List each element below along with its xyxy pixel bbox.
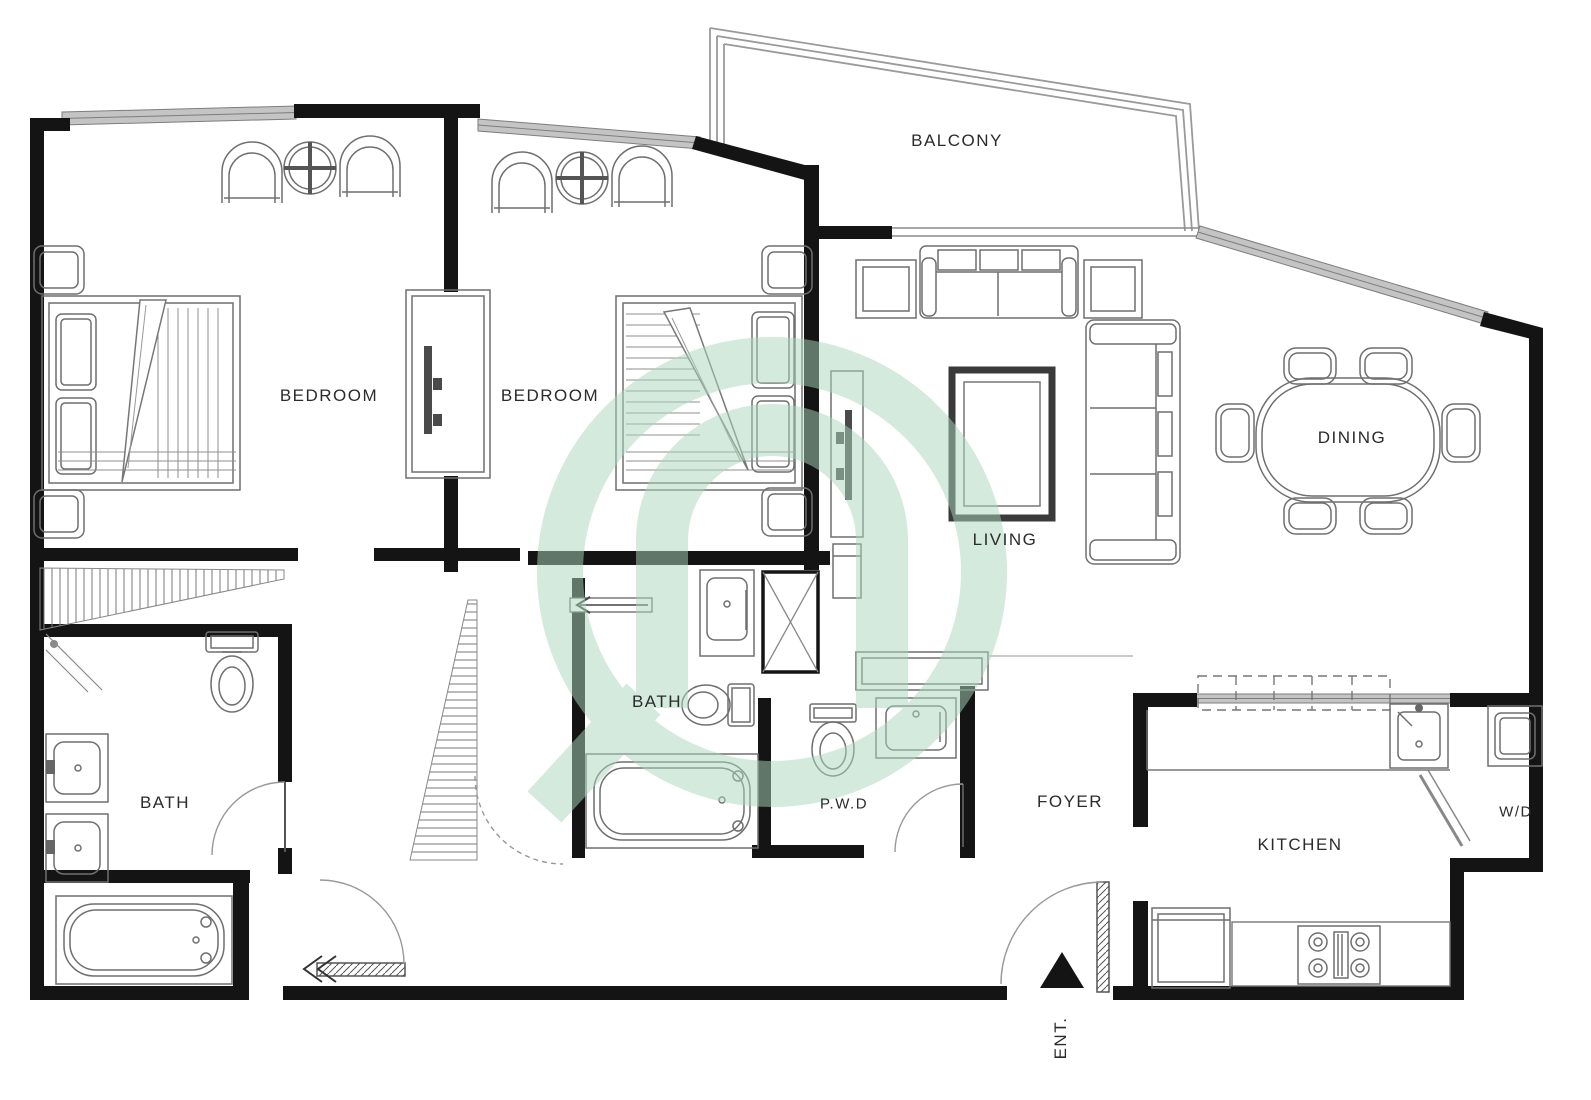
door-arc-pwd (895, 784, 963, 852)
wall-bedrooms-bottom-b (374, 548, 520, 561)
shower-icon (46, 634, 102, 692)
round-table-icon (284, 142, 336, 194)
room-label-living: LIVING (973, 530, 1038, 550)
floor-plan-drawing (0, 0, 1591, 1100)
dining-chair-icon (1284, 498, 1336, 534)
bathtub-icon (56, 896, 232, 984)
round-table-icon (556, 152, 608, 204)
room-label-wd: W/D (1499, 804, 1533, 821)
wall-bottom-b (283, 986, 1007, 1000)
toilet-icon (206, 632, 258, 712)
wall-living-top-stub (806, 226, 892, 239)
dining-chair-icon (1442, 404, 1480, 462)
wall-foyer-kitchen-lower (1133, 901, 1148, 1000)
wall-left (30, 118, 44, 1000)
wall-bottom-a (30, 986, 248, 1000)
sectional-sofa-icon (1086, 320, 1180, 564)
dining-chair-icon (1216, 404, 1254, 462)
kitchen-fixtures (1147, 676, 1450, 988)
wall-kitchen-top-left (1133, 693, 1197, 707)
sink-icon (700, 570, 754, 656)
armchair-icon (492, 152, 552, 213)
wall-corner-topright (1480, 312, 1543, 342)
door-arc-corridor (320, 880, 404, 964)
sofa-icon (920, 246, 1078, 318)
door-diagonal-wd (1420, 775, 1462, 846)
upper-cabinets-icon (1198, 676, 1390, 710)
wall-top-mid (294, 104, 480, 118)
bedroom1-furniture (34, 136, 490, 538)
door-arc-bath1 (212, 782, 285, 855)
bed-icon (42, 296, 240, 490)
wall-kitchen-right (1450, 858, 1464, 1000)
walls (30, 104, 1543, 1000)
room-label-bedroom-2: BEDROOM (501, 386, 599, 406)
room-label-kitchen: KITCHEN (1257, 835, 1342, 855)
room-label-dining: DINING (1318, 428, 1387, 448)
side-table-icon (1084, 260, 1142, 318)
side-table-icon (856, 260, 916, 318)
wall-tubroom-right (233, 883, 249, 1000)
dining-chair-icon (1360, 498, 1412, 534)
wall-bath1-right-upper (278, 630, 292, 782)
room-label-bedroom-1: BEDROOM (280, 386, 378, 406)
wall-right (1529, 328, 1543, 872)
wall-pwd-bottom (752, 845, 864, 858)
entrance-arrow-icon (1040, 952, 1084, 988)
door-leaf-entrance (1097, 882, 1109, 992)
wall-foyer-kitchen-upper (1133, 695, 1148, 827)
room-label-foyer: FOYER (1037, 792, 1103, 812)
floor-plan-page: BALCONY BEDROOM BEDROOM LIVING DINING BA… (0, 0, 1591, 1100)
wall-bedrooms-bottom-a (44, 548, 298, 561)
door-leaf-corridor (317, 963, 405, 976)
closet-wedge-corridor (410, 600, 477, 860)
armchair-icon (340, 136, 400, 197)
wall-top-left-stub (30, 118, 70, 131)
window-living-top (890, 228, 1202, 236)
closet-wedge-bedroom1 (40, 568, 284, 630)
sink-icon (46, 734, 108, 802)
wall-bath1-divider (30, 870, 250, 883)
wall-bath1-top (30, 624, 292, 637)
armchair-icon (222, 142, 282, 203)
wall-divider-top (444, 118, 458, 292)
fridge-icon (1152, 908, 1230, 988)
room-label-entrance: ENT. (1051, 1017, 1071, 1060)
shower-stall-icon (763, 572, 818, 672)
room-label-bath-1: BATH (140, 793, 190, 813)
tv-dresser-icon (406, 290, 490, 478)
room-label-pwd: P.W.D (820, 796, 868, 813)
room-label-balcony: BALCONY (911, 131, 1003, 151)
wall-sloped-bedroom2 (692, 136, 816, 182)
armchair-icon (612, 146, 672, 207)
kitchen-sink-icon (1390, 704, 1448, 768)
room-label-bath-2: BATH (632, 692, 682, 712)
stove-icon (1298, 926, 1380, 984)
balcony-railing (710, 28, 1199, 231)
toilet-icon (682, 684, 754, 726)
